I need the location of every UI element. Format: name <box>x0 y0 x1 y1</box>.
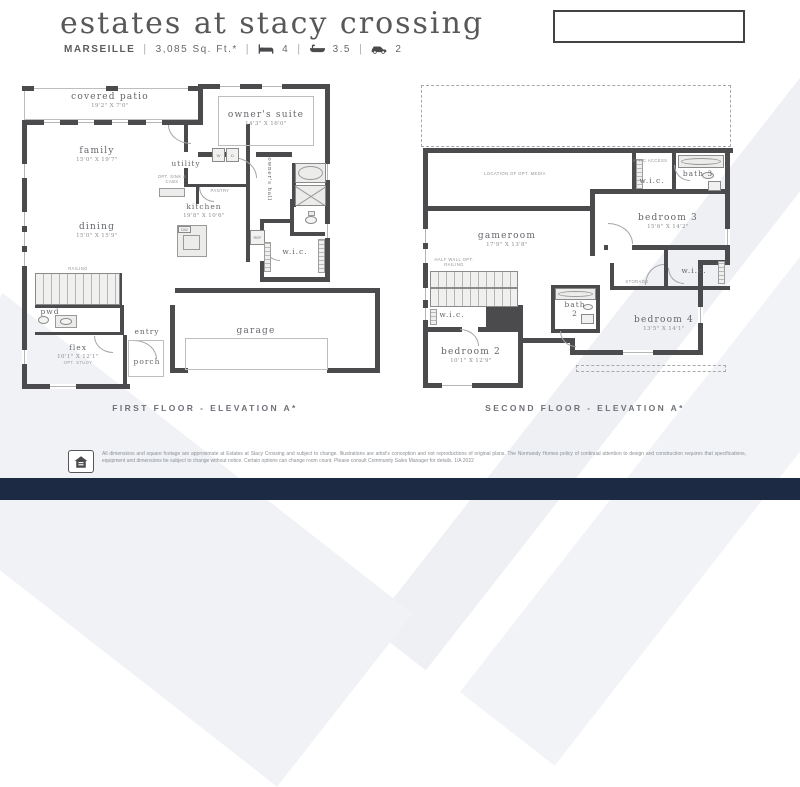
room-label-porch: porch <box>125 358 169 367</box>
roofline-dashed <box>421 85 731 147</box>
room-label-family: family15'0" X 19'7" <box>52 146 142 164</box>
community-title: estates at stacy crossing <box>60 6 484 41</box>
second-floor-plan: HALF WALL OPT. RAILING LOCATION OF OPT. … <box>420 75 750 400</box>
garage-door-outline <box>185 338 328 370</box>
toilet-tank-icon <box>308 211 315 216</box>
sqft-value: 3,085 Sq. Ft.* <box>156 44 238 55</box>
label-railing: RAILING <box>48 266 108 271</box>
room-label-pwd: pwd <box>30 308 70 317</box>
legal-disclaimer: All dimensions and square footage are ap… <box>102 451 746 465</box>
room-label-wic4: w.i.c. <box>666 267 722 276</box>
disclaimer-line1: All dimensions and square footage are ap… <box>102 451 628 457</box>
room-label-bedroom2: bedroom 210'1" X 12'9" <box>426 347 516 365</box>
range-icon <box>183 235 200 250</box>
room-label-dining: dining15'0" X 15'9" <box>52 222 142 240</box>
label-pantry: PANTRY <box>200 188 240 193</box>
sink-icon <box>60 318 72 325</box>
room-label-wic: w.i.c. <box>267 248 323 257</box>
room-label-bath3: bath 3 <box>678 170 718 179</box>
toilet-icon <box>38 316 49 324</box>
toilet-icon <box>708 181 721 191</box>
equal-housing-icon <box>68 450 94 473</box>
closet-shelf <box>264 242 271 272</box>
beds-value: 4 <box>282 44 289 55</box>
shower-icon <box>295 185 326 206</box>
dryer-icon: D <box>226 148 239 162</box>
room-label-bedroom4: bedroom 413'5" X 14'1" <box>614 315 714 333</box>
dishwasher-icon: DW <box>178 226 191 233</box>
stairs <box>35 273 120 305</box>
blank-logo-box <box>553 10 745 43</box>
first-floor-plan: RAILING DW REF W D covered patio19'2" X … <box>22 84 392 398</box>
room-label-kitchen: kitchen19'8" X 10'6" <box>168 203 240 219</box>
stairs <box>430 271 518 307</box>
room-label-wic3: w.i.c. <box>634 177 670 186</box>
refrigerator-icon: REF <box>250 230 265 245</box>
room-label-utility: utility <box>160 160 212 169</box>
cars-value: 2 <box>395 44 402 55</box>
opt-sink-cabinet <box>159 188 185 197</box>
second-floor-caption: SECOND FLOOR - ELEVATION A* <box>425 403 745 413</box>
room-label-bedroom3: bedroom 315'6" X 14'2" <box>618 213 718 231</box>
room-label-entry: entry <box>125 328 169 337</box>
label-half-wall: HALF WALL OPT. RAILING <box>430 257 478 268</box>
toilet-icon <box>305 216 317 224</box>
washer-icon: W <box>212 148 225 162</box>
plan-name: MARSEILLE <box>64 44 135 55</box>
room-label-gameroom: gameroom17'9" X 13'8" <box>465 231 549 249</box>
room-label-owners-suite: owner's suite14'3" X 16'0" <box>220 110 312 128</box>
room-label-owners-hall: owner's hall <box>266 156 272 202</box>
stair-rail <box>430 287 518 289</box>
bath-icon <box>310 44 325 54</box>
room-label-wic2: w.i.c. <box>430 311 474 320</box>
room-label-covered-patio: covered patio19'2" X 7'0" <box>46 92 174 110</box>
tub-icon <box>555 288 596 300</box>
bottom-brand-bar <box>0 478 800 500</box>
car-icon <box>371 45 387 54</box>
bed-icon <box>258 44 274 54</box>
label-storage: STORAGE <box>612 279 662 284</box>
room-label-flex: flex10'1" X 12'1"OPT. STUDY <box>36 344 120 366</box>
baths-value: 3.5 <box>333 44 351 55</box>
roofline-dashed <box>576 365 726 372</box>
label-opt-sink: OPT. SINK & CABS <box>154 174 190 185</box>
tub-icon <box>295 163 326 183</box>
plan-summary: MARSEILLE | 3,085 Sq. Ft.* | 4 | 3.5 | 2 <box>64 43 402 55</box>
first-floor-caption: FIRST FLOOR - ELEVATION A* <box>40 403 370 413</box>
tub-icon <box>678 155 724 168</box>
room-label-garage: garage <box>214 326 298 336</box>
room-label-bath2: bath 2 <box>562 301 588 318</box>
label-opt-media: LOCATION OF OPT. MEDIA <box>484 171 546 176</box>
label-attic-access: ATTIC ACCESS <box>632 158 668 163</box>
